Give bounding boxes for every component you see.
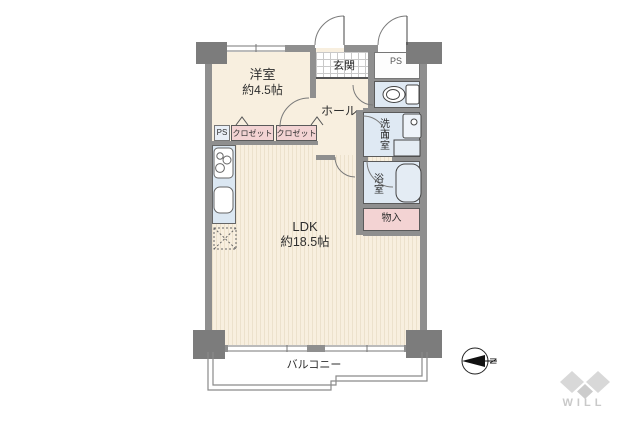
ps-door-arc bbox=[378, 16, 407, 45]
stove-icon bbox=[214, 148, 233, 178]
washer-space-icon bbox=[394, 140, 420, 156]
yoshitsu-door-arc bbox=[280, 98, 309, 127]
label-closet-2: クロゼット bbox=[276, 129, 317, 139]
brand-logo-icon bbox=[560, 371, 610, 399]
compass-icon: N bbox=[462, 348, 498, 374]
label-ldk: LDK 約18.5帖 bbox=[260, 219, 350, 251]
toilet-icon bbox=[383, 85, 419, 104]
ldk-name: LDK bbox=[260, 219, 350, 235]
label-ps-small: PS bbox=[214, 128, 230, 138]
toilet-door-arc bbox=[353, 85, 373, 105]
label-balcony: バルコニー bbox=[279, 359, 349, 373]
label-ps-top: PS bbox=[374, 56, 418, 67]
hall-ldk-door-arc bbox=[335, 157, 355, 177]
yoshitsu-name: 洋室 bbox=[220, 67, 305, 83]
compass-north-label: N bbox=[488, 358, 498, 365]
floor-plan: N 洋室 約4.5帖 LDK 約18.5帖 玄関 PS ホール 洗面室 浴室 物… bbox=[0, 0, 640, 427]
label-bath: 浴室 bbox=[370, 167, 383, 201]
washbasin-icon bbox=[403, 114, 421, 138]
label-senmen: 洗面室 bbox=[376, 113, 389, 156]
closet-door-marks bbox=[236, 117, 323, 125]
refrigerator-space bbox=[214, 228, 236, 249]
sink-icon bbox=[214, 187, 233, 213]
ldk-area: 約18.5帖 bbox=[260, 235, 350, 251]
label-closet-1: クロゼット bbox=[231, 129, 274, 139]
window-balcony bbox=[228, 345, 404, 352]
label-monoire: 物入 bbox=[363, 213, 420, 226]
window-top bbox=[227, 44, 285, 52]
label-genkan: 玄関 bbox=[319, 60, 369, 74]
entrance-door-arc bbox=[315, 16, 344, 45]
yoshitsu-area: 約4.5帖 bbox=[220, 83, 305, 98]
bathtub-icon bbox=[396, 164, 421, 202]
label-hall: ホール bbox=[313, 104, 365, 119]
label-yoshitsu: 洋室 約4.5帖 bbox=[220, 67, 305, 98]
brand-logo-text: WILL bbox=[556, 397, 612, 409]
